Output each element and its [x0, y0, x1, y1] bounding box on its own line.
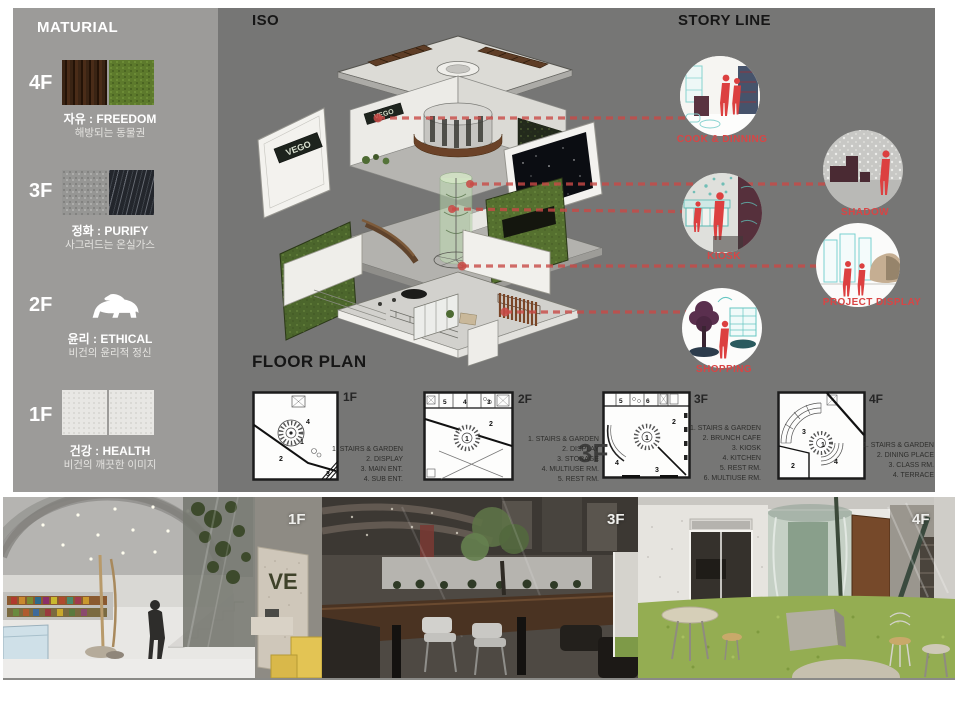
plaster-swatch	[109, 390, 154, 435]
story-circle-shadow	[823, 130, 903, 212]
svg-text:4: 4	[463, 399, 467, 406]
floor-label-2f: 2F	[29, 294, 52, 317]
svg-text:2: 2	[279, 456, 283, 463]
photo-label-4f: 4F	[912, 511, 930, 528]
story-label-shopping: SHOPPING	[696, 364, 752, 375]
story-label-project-display: PROJECT DISPLAY	[823, 297, 921, 308]
streak-swatch	[109, 170, 154, 215]
svg-text:2: 2	[791, 463, 795, 470]
svg-text:1: 1	[465, 436, 469, 443]
legend-2f: 1. STAIRS & GARDEN 2. DISPLAY 3. STORAGE…	[489, 435, 599, 485]
svg-text:3: 3	[487, 399, 491, 406]
svg-text:3: 3	[802, 429, 806, 436]
render-photo-3f	[322, 497, 638, 680]
story-circle-shopping	[682, 288, 762, 368]
presentation-board: MATURIAL 4F 자유 : FREEDOM 해방되는 동물권 3F 정화 …	[0, 0, 960, 720]
story-label-cook-dinning: COOK & DINNING	[677, 134, 768, 145]
svg-text:5: 5	[443, 399, 447, 406]
polar-bear-icon	[83, 288, 147, 324]
floor-caption-2f: 비건의 윤리적 정신	[28, 345, 192, 360]
photo-label-1f: 1F	[288, 511, 306, 528]
svg-text:4: 4	[615, 460, 619, 467]
svg-text:6: 6	[646, 398, 650, 405]
legend-3f: 1. STAIRS & GARDEN 2. BRUNCH CAFE 3. KIO…	[651, 424, 761, 484]
plan-label-2f: 2F	[518, 392, 532, 406]
material-sidebar: MATURIAL 4F 자유 : FREEDOM 해방되는 동물권 3F 정화 …	[13, 8, 218, 492]
floor-label-4f: 4F	[29, 72, 52, 95]
floorplan-title: FLOOR PLAN	[252, 352, 367, 372]
floor-caption-1f: 비건의 깨끗한 이미지	[28, 457, 192, 472]
material-swatches-3f	[62, 170, 154, 215]
plan-label-1f: 1F	[343, 390, 357, 404]
photo-label-3f: 3F	[607, 511, 625, 528]
plan-label-3f: 3F	[694, 392, 708, 406]
sidebar-title: MATURIAL	[37, 19, 118, 36]
concrete-swatch	[62, 170, 107, 215]
iso-sign-panel: VEGO	[258, 108, 330, 218]
story-circle-project-display	[816, 223, 904, 307]
floor-label-1f: 1F	[29, 404, 52, 427]
material-swatches-1f	[62, 390, 154, 435]
story-circle-cook-dinning	[680, 56, 760, 136]
storyline-title: STORY LINE	[678, 12, 771, 29]
material-swatches-4f	[62, 60, 154, 105]
legend-1f: 1. STAIRS & GARDEN 2. DISPLAY 3. MAIN EN…	[293, 445, 403, 485]
kiosk-sign-text: VE	[268, 569, 297, 594]
plan-label-4f: 4F	[869, 392, 883, 406]
floor-caption-3f: 사그러드는 온실가스	[28, 237, 192, 252]
wood-swatch	[62, 60, 107, 105]
svg-text:2: 2	[489, 421, 493, 428]
render-photo-1f: VE	[3, 497, 322, 680]
iso-axonometric-drawing: VEGO VEGO	[258, 36, 602, 366]
render-photo-4f	[638, 497, 955, 680]
grass-swatch	[109, 60, 154, 105]
svg-text:1: 1	[645, 435, 649, 442]
story-label-shadow: SHADOW	[841, 207, 889, 218]
svg-text:4: 4	[306, 419, 310, 426]
render-photo-strip: VE	[0, 497, 960, 678]
floor-label-3f: 3F	[29, 180, 52, 203]
iso-title: ISO	[252, 12, 279, 29]
svg-text:5: 5	[619, 398, 623, 405]
floor-caption-4f: 해방되는 동물권	[28, 125, 192, 140]
plaster-swatch	[62, 390, 107, 435]
concrete-stool	[786, 609, 846, 651]
story-label-kiosk: KIOSK	[707, 251, 741, 262]
legend-4f: 1. STAIRS & GARDEN 2. DINING PLACE 3. CL…	[824, 441, 934, 481]
